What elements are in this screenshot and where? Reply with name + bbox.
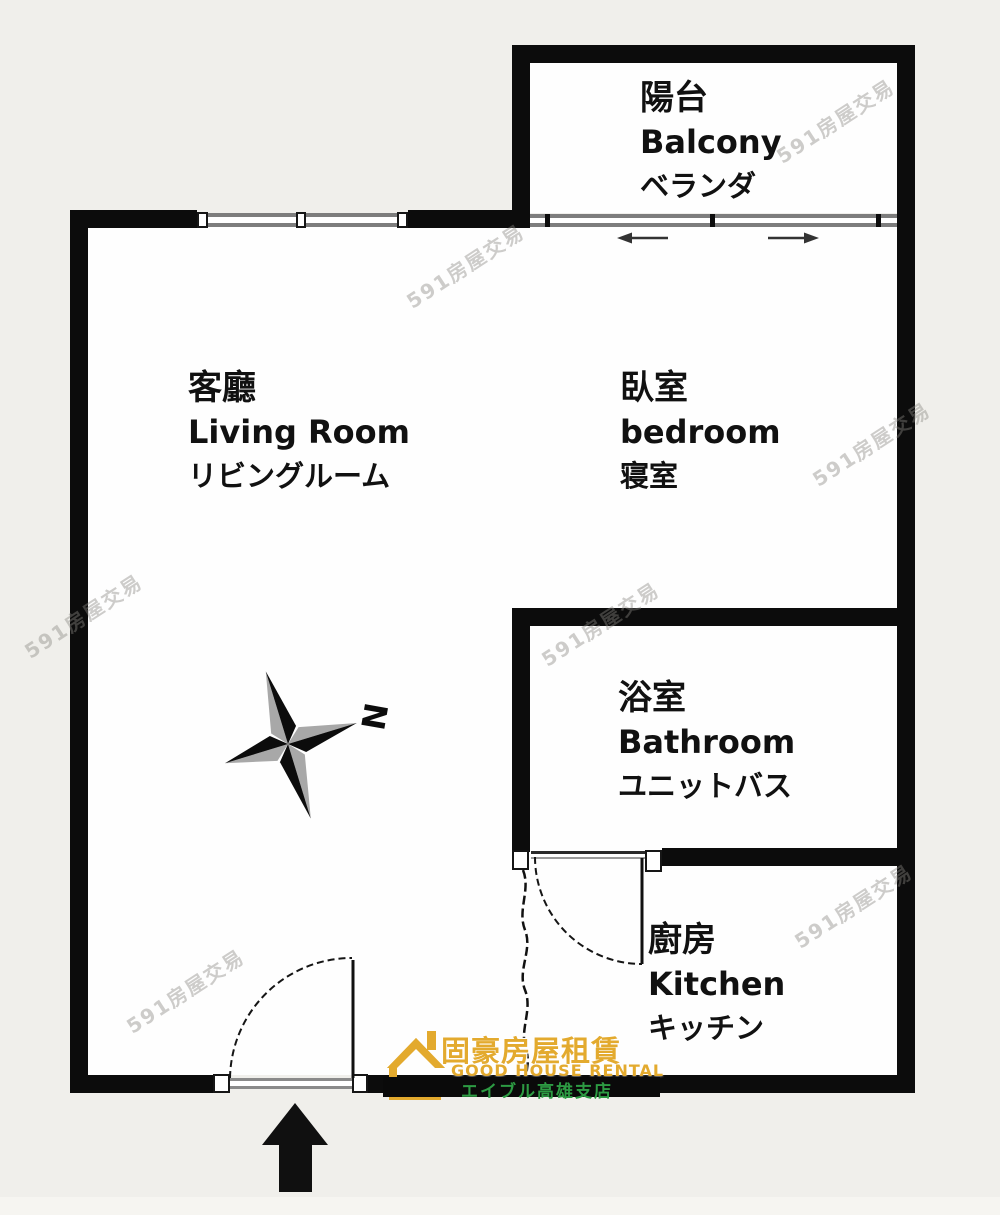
bathroom-label-zh: 浴室: [618, 676, 795, 720]
balcony-label: 陽台 Balcony ベランダ: [640, 76, 782, 208]
window-end-right: [397, 212, 408, 228]
entrance-jamb-right: [352, 1074, 368, 1093]
window-mullion: [296, 212, 306, 228]
living-room-label: 客廳 Living Room リビングルーム: [188, 366, 410, 498]
balcony-label-ja: ベランダ: [640, 164, 782, 208]
wall-left: [70, 210, 88, 1093]
balcony-wall-left: [512, 45, 530, 228]
bathroom-label: 浴室 Bathroom ユニットバス: [618, 676, 795, 808]
wall-bottom-left-segment: [70, 1075, 214, 1093]
window-end-left: [197, 212, 208, 228]
living-room-label-en: Living Room: [188, 410, 410, 454]
bathroom-door-jamb-left: [512, 850, 529, 870]
sliding-door-stile: [545, 214, 550, 227]
living-room-label-zh: 客廳: [188, 366, 410, 410]
agency-branch-bar: エイブル高雄支店: [383, 1077, 660, 1097]
bedroom-label-zh: 臥室: [620, 366, 781, 410]
balcony-label-zh: 陽台: [640, 76, 782, 120]
bathroom-label-ja: ユニットバス: [618, 764, 795, 808]
entrance-arrow-stem: [279, 1144, 312, 1192]
bathroom-door-threshold: [531, 851, 645, 859]
floor-plan: N 陽台 Balcony ベランダ 客廳 Living Room リビングルーム…: [0, 0, 1000, 1215]
bedroom-label-ja: 寝室: [620, 454, 781, 498]
living-room-label-ja: リビングルーム: [188, 454, 410, 498]
balcony-label-en: Balcony: [640, 120, 782, 164]
bathroom-wall-bottom: [662, 848, 915, 866]
entrance-arrow-icon: [262, 1103, 328, 1145]
agency-logo: 固豪房屋租賃 GOOD HOUSE RENTAL エイブル高雄支店: [383, 1026, 673, 1100]
bathroom-door-jamb-right: [645, 850, 662, 872]
wall-top-left-segment: [70, 210, 197, 228]
kitchen-label-en: Kitchen: [648, 962, 785, 1006]
bedroom-label-en: bedroom: [620, 410, 781, 454]
sliding-door-stile: [710, 214, 715, 227]
bathroom-label-en: Bathroom: [618, 720, 795, 764]
bathroom-wall-left: [512, 608, 530, 852]
balcony-wall-top: [512, 45, 915, 63]
entrance-threshold: [229, 1078, 352, 1089]
agency-branch-ja: エイブル高雄支店: [461, 1077, 613, 1102]
bedroom-label: 臥室 bedroom 寝室: [620, 366, 781, 498]
sliding-door-stile: [876, 214, 881, 227]
entrance-jamb-left: [213, 1074, 230, 1093]
wall-right: [897, 45, 915, 1093]
kitchen-label-zh: 廚房: [648, 918, 785, 962]
image-bottom-strip: [0, 1197, 1000, 1215]
